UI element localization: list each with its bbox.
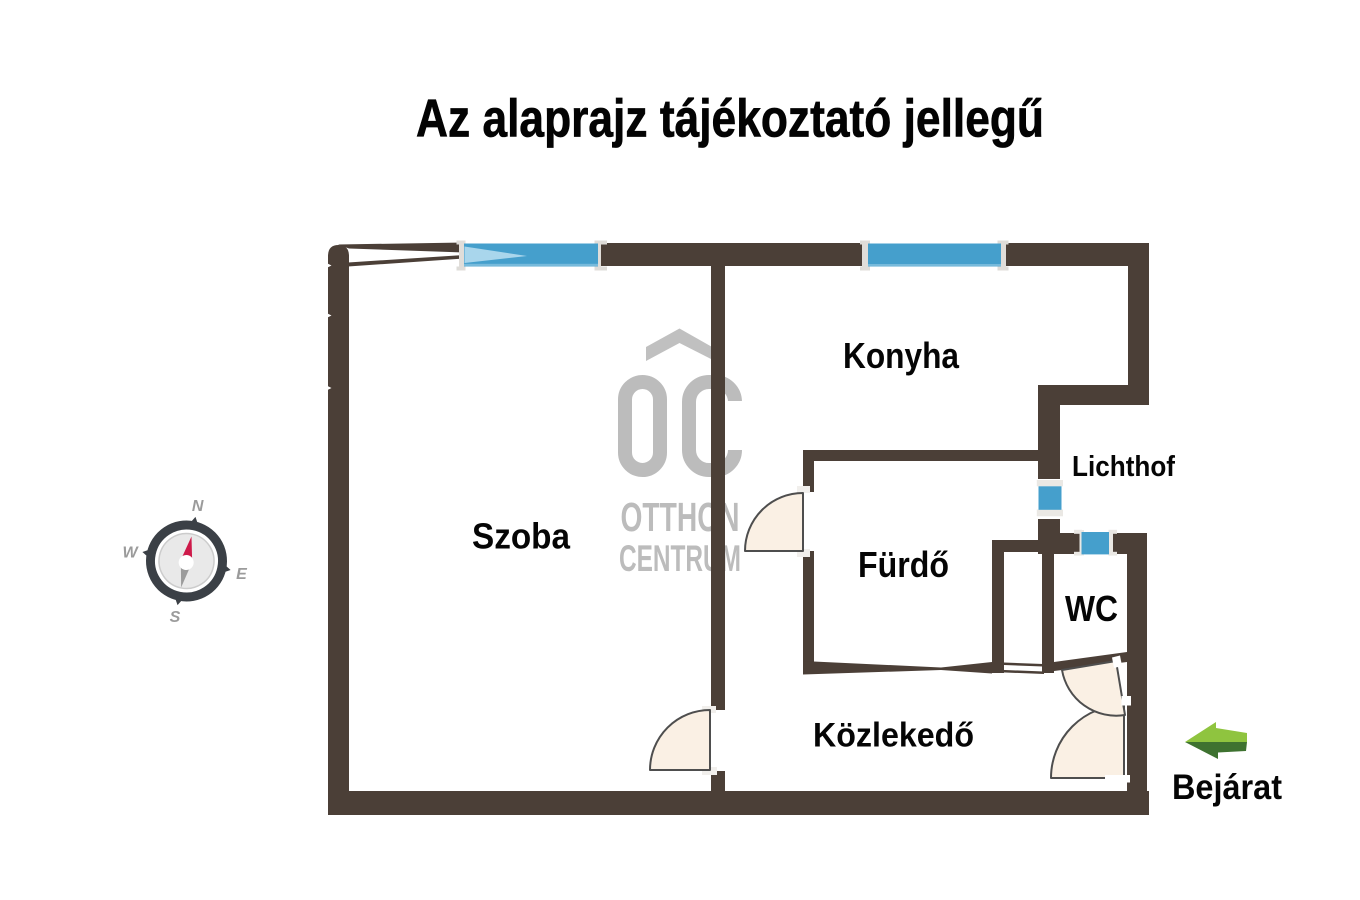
svg-text:S: S: [170, 609, 181, 626]
svg-text:Bejárat: Bejárat: [1172, 768, 1282, 807]
svg-text:WC: WC: [1065, 588, 1118, 629]
svg-text:N: N: [192, 498, 204, 515]
svg-text:Közlekedő: Közlekedő: [813, 717, 974, 755]
svg-text:W: W: [122, 545, 139, 562]
svg-text:Fürdő: Fürdő: [858, 544, 949, 585]
svg-text:E: E: [236, 566, 248, 583]
svg-text:Lichthof: Lichthof: [1072, 451, 1175, 483]
svg-text:Az alaprajz tájékoztató jelleg: Az alaprajz tájékoztató jellegű: [416, 90, 1044, 149]
svg-text:Szoba: Szoba: [472, 516, 571, 557]
svg-text:Konyha: Konyha: [843, 335, 960, 376]
